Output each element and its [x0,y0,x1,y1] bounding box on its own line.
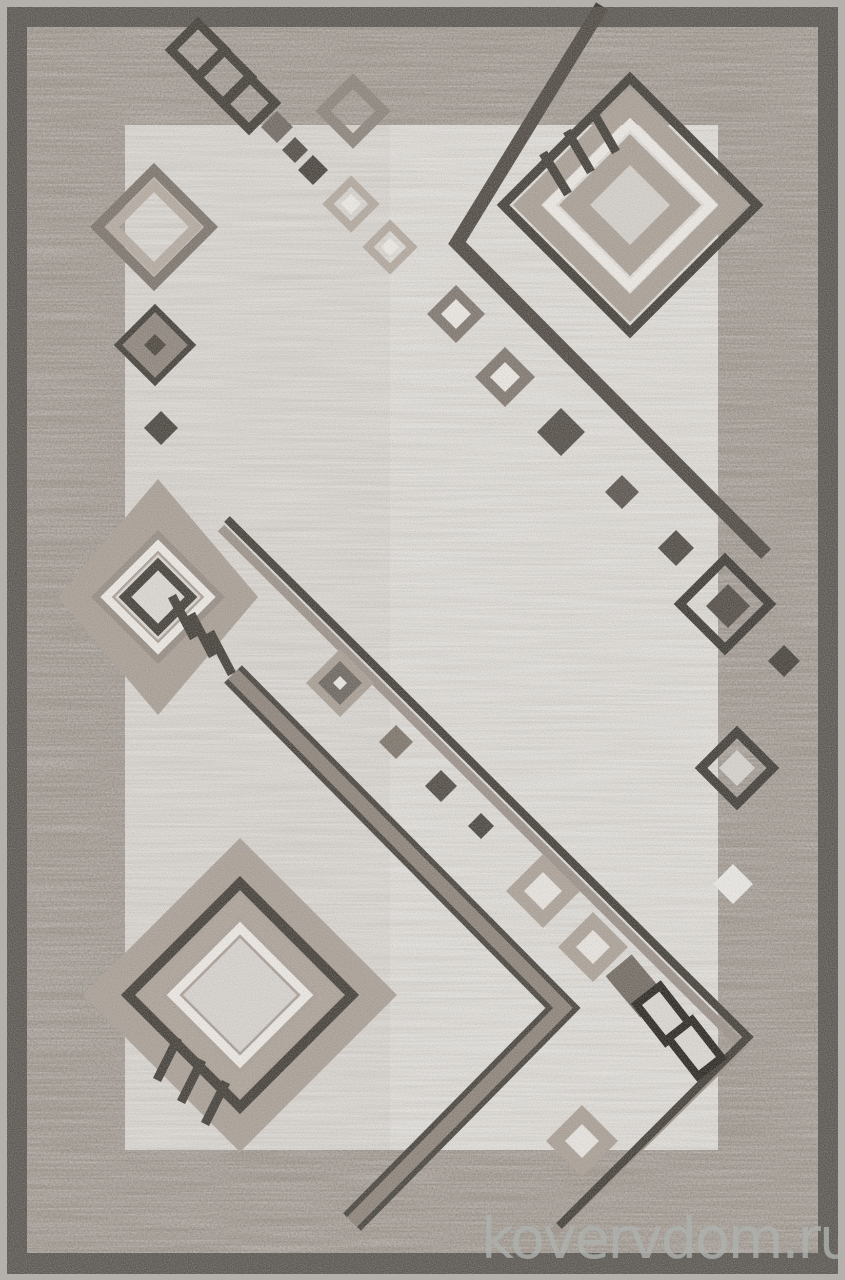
rug-artwork [0,0,845,1280]
watermark-text: kovervdom.ru [481,1206,845,1272]
pile-grain-overlay [7,7,838,1274]
rug-product-photo: kovervdom.ru [0,0,845,1280]
